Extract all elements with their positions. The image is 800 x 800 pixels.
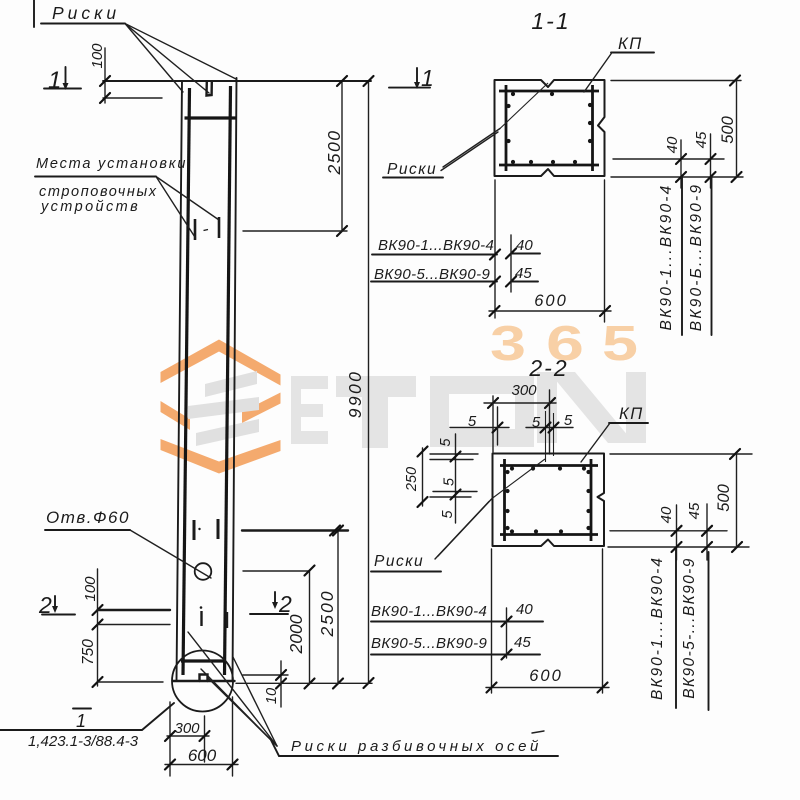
svg-text:2500: 2500 <box>324 130 344 176</box>
svg-text:Риски разбивочных осей: Риски разбивочных осей <box>291 738 542 755</box>
svg-text:Отв.Ф60: Отв.Ф60 <box>46 508 130 527</box>
svg-text:500: 500 <box>719 115 737 143</box>
svg-text:1: 1 <box>48 67 61 94</box>
svg-text:2000: 2000 <box>286 614 306 654</box>
svg-text:45: 45 <box>514 634 531 651</box>
svg-text:ВК90-1...ВК90-4: ВК90-1...ВК90-4 <box>649 556 666 700</box>
svg-text:250: 250 <box>404 467 420 492</box>
svg-text:9900: 9900 <box>345 370 365 419</box>
svg-text:ВК90-1...ВК90-4: ВК90-1...ВК90-4 <box>658 184 675 331</box>
svg-text:45: 45 <box>686 502 703 519</box>
svg-text:ВК90-1...ВК90-4: ВК90-1...ВК90-4 <box>378 237 494 254</box>
svg-text:40: 40 <box>516 601 533 618</box>
svg-text:КП: КП <box>618 35 643 53</box>
svg-text:5: 5 <box>532 414 541 431</box>
svg-text:500: 500 <box>715 483 733 511</box>
svg-text:750: 750 <box>80 639 97 665</box>
svg-text:5: 5 <box>564 412 573 429</box>
svg-text:ВК90-5...ВК90-9: ВК90-5...ВК90-9 <box>371 635 487 652</box>
svg-text:устройств: устройств <box>40 199 140 215</box>
svg-text:1,423.1-3/88.4-3: 1,423.1-3/88.4-3 <box>28 733 139 750</box>
svg-text:100: 100 <box>82 576 99 602</box>
svg-text:ВК90-1...ВК90-4: ВК90-1...ВК90-4 <box>371 603 487 620</box>
svg-text:100: 100 <box>89 43 106 69</box>
svg-text:5: 5 <box>442 477 458 486</box>
svg-text:40: 40 <box>658 506 675 523</box>
svg-text:1-1: 1-1 <box>531 8 570 34</box>
svg-text:Риски: Риски <box>52 3 120 23</box>
svg-text:Риски: Риски <box>387 161 437 178</box>
svg-text:2500: 2500 <box>317 590 337 638</box>
svg-text:5: 5 <box>468 413 477 430</box>
svg-text:45: 45 <box>693 131 710 148</box>
svg-text:ВК90-5...ВК90-9: ВК90-5...ВК90-9 <box>374 266 490 283</box>
svg-text:Риски: Риски <box>374 553 424 570</box>
svg-text:ВК90-5-...ВК90-9: ВК90-5-...ВК90-9 <box>681 557 698 698</box>
svg-text:ВК90-Б...ВК90-9: ВК90-Б...ВК90-9 <box>688 183 705 331</box>
svg-text:600: 600 <box>534 292 568 310</box>
svg-text:600: 600 <box>188 746 217 765</box>
svg-text:40: 40 <box>516 237 533 254</box>
svg-text:300: 300 <box>511 382 537 399</box>
svg-text:2-2: 2-2 <box>528 355 568 381</box>
svg-text:40: 40 <box>664 136 681 153</box>
svg-text:3: 3 <box>490 317 526 371</box>
svg-text:5: 5 <box>602 317 638 371</box>
svg-text:600: 600 <box>529 667 563 685</box>
svg-text:300: 300 <box>174 720 200 737</box>
svg-text:Места установки: Места установки <box>36 156 187 172</box>
svg-text:5: 5 <box>440 510 456 519</box>
svg-text:45: 45 <box>515 265 532 282</box>
svg-text:10: 10 <box>264 688 280 704</box>
svg-text:КП: КП <box>619 405 644 423</box>
svg-text:строповочных: строповочных <box>39 184 158 200</box>
svg-text:5: 5 <box>438 438 454 447</box>
svg-text:1: 1 <box>76 711 86 731</box>
